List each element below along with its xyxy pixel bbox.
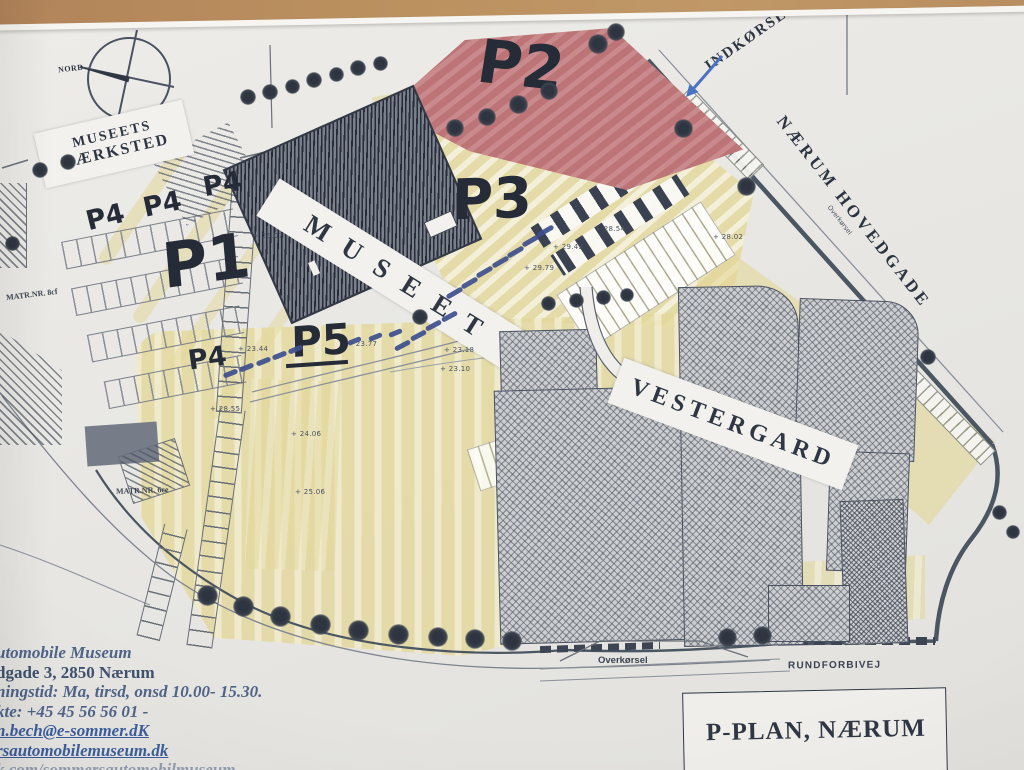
elevation-label: + 29.79 xyxy=(524,264,554,272)
street-label-overkoersel-bottom: Overkørsel xyxy=(598,655,648,666)
tree-icon xyxy=(197,585,218,606)
ground-yellow-area xyxy=(245,378,342,571)
handwritten-p4: P4 xyxy=(186,342,228,374)
elevation-label: + 23.44 xyxy=(238,345,268,353)
info-phone: kte: +45 45 56 56 01 - xyxy=(0,702,356,722)
tree-icon xyxy=(753,626,772,645)
tree-icon xyxy=(920,349,936,365)
tree-icon xyxy=(348,620,369,641)
tree-icon xyxy=(310,614,331,635)
info-museum-name: utomobile Museum xyxy=(0,643,356,663)
title-box: P-PLAN, NÆRUM xyxy=(682,687,948,770)
tree-icon xyxy=(412,309,428,325)
elevation-label: + 24.06 xyxy=(291,430,321,438)
tree-icon xyxy=(465,629,485,649)
tree-icon xyxy=(306,72,322,88)
tree-icon xyxy=(5,236,20,251)
tree-icon xyxy=(607,23,625,41)
tree-icon xyxy=(233,596,254,617)
tree-icon xyxy=(240,89,256,105)
tree-icon xyxy=(428,627,448,647)
tree-icon xyxy=(32,162,48,178)
tree-icon xyxy=(569,293,584,308)
tree-icon xyxy=(992,505,1007,520)
tree-icon xyxy=(509,95,528,114)
handwritten-p4: P4 xyxy=(141,187,184,221)
handwritten-p4: P4 xyxy=(201,168,244,201)
tree-icon xyxy=(502,631,522,651)
tree-icon xyxy=(329,67,344,82)
info-facebook-link[interactable]: k.com/sommersautomobilmuseum xyxy=(0,760,356,770)
compass-north-label: NORD xyxy=(58,63,84,75)
tree-icon xyxy=(718,628,737,647)
tree-icon xyxy=(588,34,608,54)
door-mark xyxy=(308,260,320,276)
info-address: dgade 3, 2850 Nærum xyxy=(0,663,356,683)
plan-title: P-PLAN, NÆRUM xyxy=(706,714,947,747)
tree-icon xyxy=(373,56,388,71)
tree-icon xyxy=(388,624,409,645)
hatch-area xyxy=(0,330,62,445)
info-email-link[interactable]: n.bech@e-sommer.dK xyxy=(0,721,356,741)
tree-icon xyxy=(620,288,634,302)
tree-icon xyxy=(541,296,556,311)
handwritten-p5: P5 xyxy=(291,318,352,364)
crossing-dashes xyxy=(540,642,660,653)
elevation-label: + 23.10 xyxy=(440,365,470,373)
entrance-arrow-icon xyxy=(678,52,728,107)
tree-icon xyxy=(270,606,291,627)
tree-icon xyxy=(1006,525,1020,539)
tree-icon xyxy=(350,60,366,76)
photo-of-parking-plan: MUSEET VESTERGARD NORD MUSEETS VÆRKSTED … xyxy=(0,0,1024,770)
tree-icon xyxy=(285,79,300,94)
street-label-naerum-hovedgade: NÆRUM HOVEDGADE xyxy=(772,112,934,312)
tree-icon xyxy=(674,119,693,138)
matr-nr-label: MATR.NR. 8cf xyxy=(6,287,58,302)
tree-icon xyxy=(596,290,611,305)
handwritten-p3: P3 xyxy=(452,171,533,230)
elevation-label: + 28.02 xyxy=(713,233,743,241)
elevation-label: + 28.54 xyxy=(595,225,625,233)
elevation-label: + 29.43 xyxy=(553,243,583,251)
vestergard-building xyxy=(499,329,598,396)
tree-icon xyxy=(262,84,278,100)
matr-nr-label: MATR.NR. 6ce xyxy=(116,485,169,496)
hatch-area xyxy=(0,183,27,268)
info-website-link[interactable]: rsautomobilemuseum.dk xyxy=(0,741,356,761)
street-label-rundforbivej: RUNDFORBIVEJ xyxy=(788,660,881,672)
elevation-label: + 25.07 xyxy=(253,232,283,240)
elevation-label: + 23.18 xyxy=(444,346,474,354)
elevation-label: + 28.55 xyxy=(210,405,240,413)
tree-icon xyxy=(60,154,76,170)
tree-icon xyxy=(737,177,756,196)
tree-icon xyxy=(478,108,496,126)
handwritten-p1: P1 xyxy=(160,224,253,298)
tree-icon xyxy=(446,119,464,137)
elevation-label: + 25.06 xyxy=(295,488,325,496)
info-opening-hours: ningstid: Ma, tirsd, onsd 10.00- 15.30. xyxy=(0,682,356,702)
vestergard-building xyxy=(768,585,850,642)
tree-icon xyxy=(540,82,558,100)
info-block: utomobile Museum dgade 3, 2850 Nærum nin… xyxy=(0,643,356,770)
parking-ladder xyxy=(136,524,187,641)
